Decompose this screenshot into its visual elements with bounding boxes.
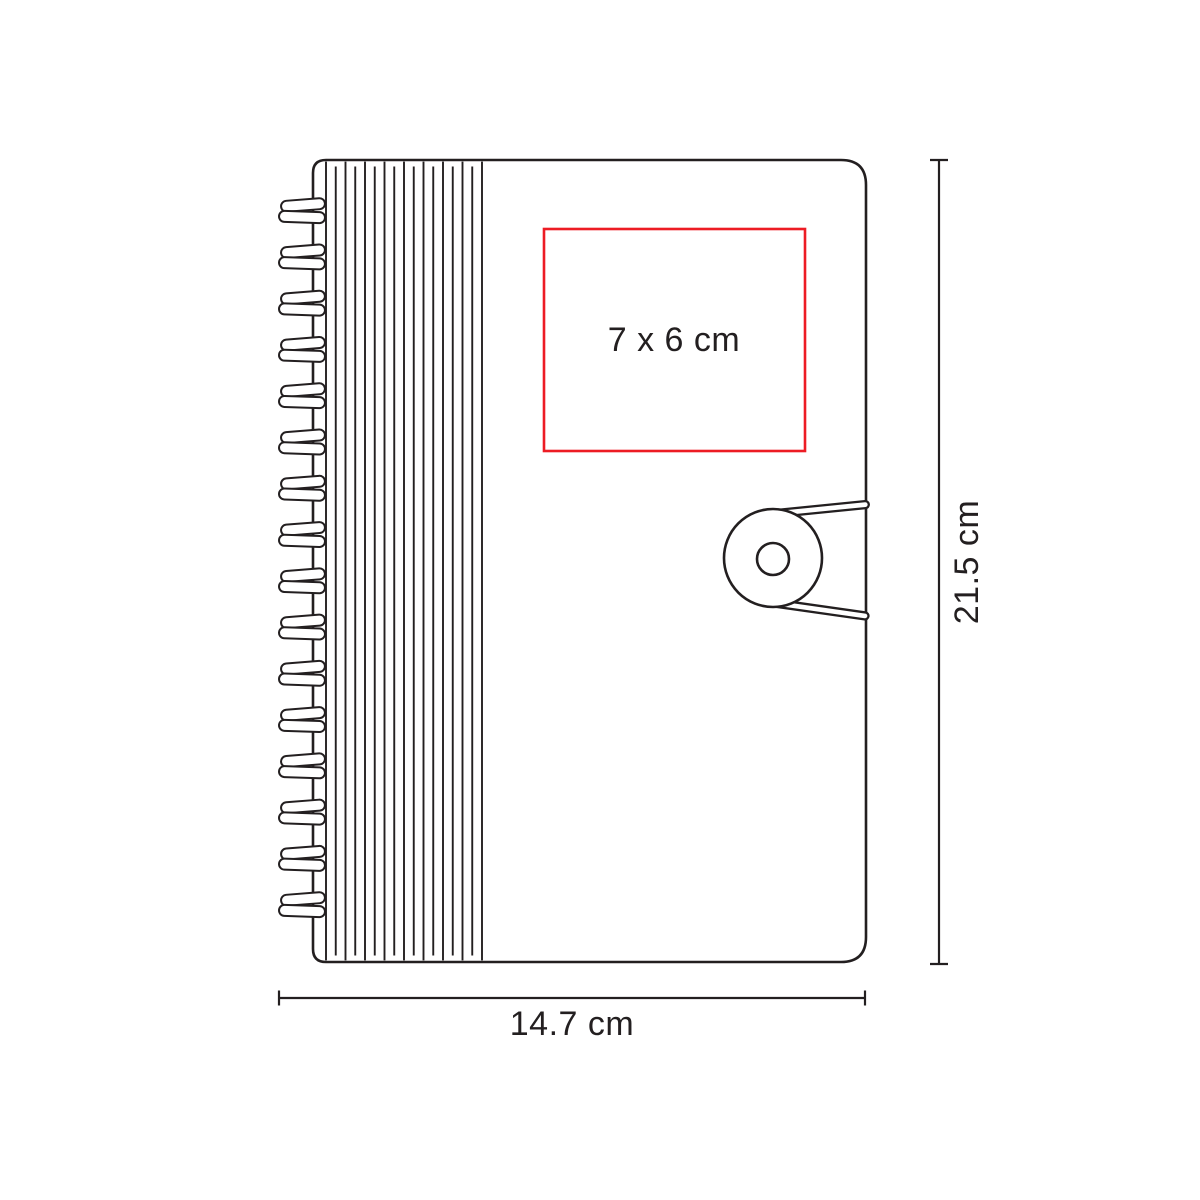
coil-wire-lower <box>279 211 325 224</box>
coil-wire-lower <box>279 396 325 409</box>
coil-wire-lower <box>279 858 325 871</box>
product-diagram: 7 x 6 cm 21.5 cm 14.7 cm <box>0 0 1200 1200</box>
coil-wire-lower <box>279 442 325 455</box>
coil-wire-lower <box>279 350 325 363</box>
coil-wire-lower <box>279 303 325 316</box>
coil-wire-lower <box>279 673 325 686</box>
coil-wire-lower <box>279 766 325 779</box>
coil-wire-lower <box>279 812 325 825</box>
coil-wire-lower <box>279 627 325 640</box>
coil-wire-lower <box>279 720 325 733</box>
width-dimension: 14.7 cm <box>279 991 865 1044</box>
button-hole-icon <box>757 543 789 575</box>
coil-wire-lower <box>279 581 325 594</box>
width-dimension-label: 14.7 cm <box>510 1005 634 1043</box>
notebook-diagram-svg: 7 x 6 cm 21.5 cm 14.7 cm <box>0 0 1200 1200</box>
coil-wire-lower <box>279 535 325 548</box>
coil-wire-lower <box>279 488 325 501</box>
imprint-area-label: 7 x 6 cm <box>608 321 740 359</box>
height-dimension: 21.5 cm <box>930 160 986 964</box>
coil-wire-lower <box>279 257 325 270</box>
coil-wire-lower <box>279 905 325 918</box>
height-dimension-label: 21.5 cm <box>948 500 986 624</box>
